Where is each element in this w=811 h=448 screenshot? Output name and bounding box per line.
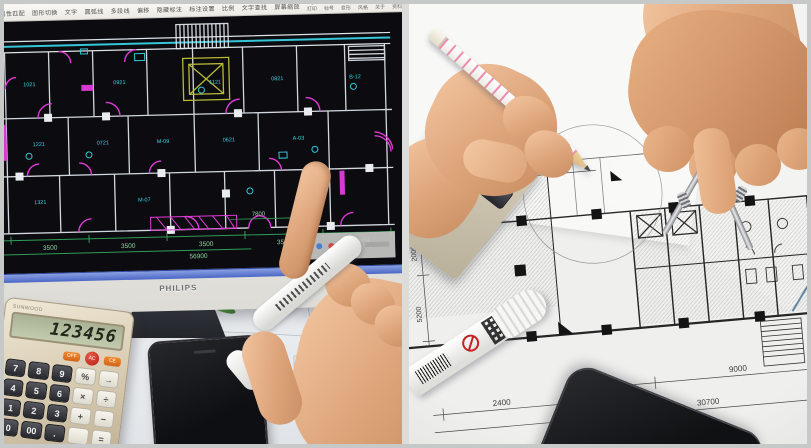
ac-key: AC: [84, 351, 100, 367]
svg-text:1121: 1121: [209, 80, 221, 86]
toolbar-transform: 变形: [341, 4, 351, 12]
key-9: 9: [51, 364, 73, 383]
key-5: 5: [25, 381, 47, 400]
stairs: [760, 318, 804, 366]
phone-speaker-slit: [194, 349, 216, 354]
left-photo-cad-workstation: 属性匹配 图形切换 文字 圆弧线 多段线 偏移 隐藏标注 标注设置 比例 文字查…: [4, 4, 402, 444]
svg-text:1321: 1321: [34, 200, 46, 206]
svg-text:A-03: A-03: [293, 136, 305, 142]
svg-text:30700: 30700: [696, 397, 720, 408]
key-divide: ÷: [95, 389, 117, 408]
key-00: 00: [20, 421, 42, 440]
svg-text:1221: 1221: [33, 142, 45, 148]
svg-text:3500: 3500: [199, 241, 214, 248]
calculator-left: SUNWOOD 123456 OFF AC CE 7 8 9 % → 4 5 6…: [4, 297, 135, 444]
knuckle: [777, 128, 807, 170]
key-percent: %: [74, 367, 96, 386]
svg-text:1021: 1021: [23, 82, 35, 88]
menu-item: 比例: [222, 4, 235, 12]
key-7: 7: [4, 358, 26, 377]
marker-red-logo: [459, 331, 483, 355]
svg-text:0821: 0821: [271, 76, 283, 82]
off-key: OFF: [63, 351, 81, 362]
toolbar-print: 打印: [307, 4, 317, 12]
marker-barcode: [415, 352, 453, 384]
key-1: 1: [4, 398, 22, 417]
monitor-brand-logo: PHILIPS: [159, 283, 197, 293]
svg-text:0921: 0921: [113, 80, 125, 86]
key-dot: .: [44, 423, 66, 442]
corridor-lines: [4, 32, 390, 53]
key-plus: +: [69, 406, 91, 425]
arm-holding-compass: [501, 4, 807, 276]
knuckle: [735, 144, 781, 186]
toolbar-about: 关于: [375, 4, 385, 11]
key-8: 8: [28, 361, 50, 380]
menu-item: 标注设置: [189, 4, 215, 13]
key-arrow: →: [97, 370, 119, 389]
menu-item: 隐藏标注: [157, 4, 183, 14]
marker-body: [409, 285, 551, 397]
key-2: 2: [23, 401, 45, 420]
svg-text:9000: 9000: [729, 364, 748, 375]
menu-item: 偏移: [137, 5, 150, 14]
svg-text:0621: 0621: [223, 137, 235, 143]
key-3: 3: [46, 404, 68, 423]
svg-text:3500: 3500: [43, 245, 58, 252]
svg-text:M-09: M-09: [157, 139, 170, 145]
key-blank: [67, 426, 89, 444]
key-minus: −: [92, 409, 114, 428]
toolbar-docs: 资料: [392, 4, 402, 10]
menu-item: 属性匹配: [4, 8, 25, 18]
menu-item: 圆弧线: [84, 6, 103, 15]
key-multiply: ×: [72, 387, 94, 406]
svg-text:56900: 56900: [189, 253, 208, 260]
key-6: 6: [48, 384, 70, 403]
photo-collage: 属性匹配 图形切换 文字 圆弧线 多段线 偏移 隐藏标注 标注设置 比例 文字查…: [0, 0, 811, 448]
menu-item: 文字查找: [242, 4, 268, 12]
photo-divider: [402, 4, 409, 444]
calculator-keypad: 7 8 9 % → 4 5 6 × ÷ 1 2 3 + − 0 00 . =: [4, 358, 120, 444]
right-photo-drafting: 2400 9000 30700 2000 5200 200 0 0 1 4: [409, 4, 807, 444]
toolbar-style: 风格: [358, 4, 368, 11]
menu-item: 文字: [65, 7, 78, 16]
toolbar-tag: 标号: [324, 4, 334, 12]
svg-text:0721: 0721: [97, 140, 109, 146]
calculator-digits: 123456: [49, 319, 118, 347]
svg-text:3500: 3500: [121, 243, 136, 250]
elevator-symbol: [183, 57, 230, 100]
magenta-hatch-strip: [151, 215, 237, 230]
svg-text:B-12: B-12: [349, 74, 361, 80]
menu-item: 多段线: [111, 5, 130, 14]
ce-key: CE: [103, 356, 121, 367]
key-equals: =: [90, 429, 112, 444]
knuckle: [643, 126, 693, 172]
key-0: 0: [4, 418, 19, 437]
svg-text:M-07: M-07: [138, 197, 151, 203]
key-4: 4: [4, 378, 24, 397]
menu-item: 屏幕缩放: [274, 4, 300, 11]
menu-item: 图形切换: [32, 7, 58, 17]
pointing-hand: [232, 152, 402, 444]
